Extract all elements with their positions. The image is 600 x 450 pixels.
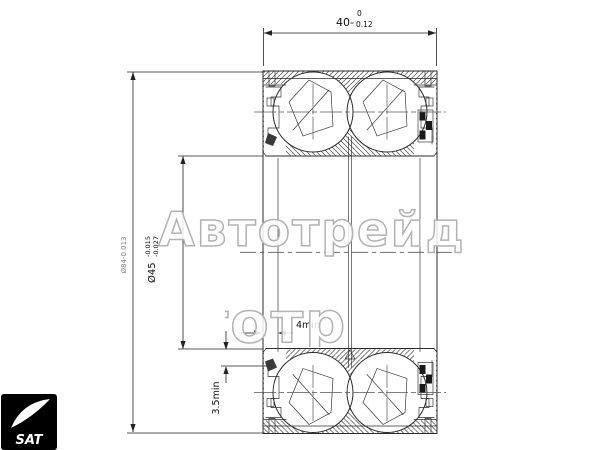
- bearing-top-half-section: [263, 71, 437, 156]
- bearing-drawing-page: 40- 0 0.12 Ø84-0.013 Ø45 -0.015 -0.027 4…: [0, 0, 600, 450]
- watermark-row-2: Автотрейд: [113, 291, 476, 356]
- brand-logo: SAT: [1, 394, 57, 450]
- bearing-technical-drawing: 40- 0 0.12 Ø84-0.013 Ø45 -0.015 -0.027 4…: [0, 0, 600, 450]
- dim-seal-depth-value: 3.5min: [211, 381, 222, 414]
- bearing-bottom-half-section: [263, 349, 437, 434]
- dim-width: 40- 0 0.12: [264, 9, 437, 66]
- dim-width-upper-tol: 0: [357, 9, 362, 18]
- dim-bore-value: Ø45: [146, 262, 158, 283]
- dim-outer-diameter-value: Ø84-0.013: [120, 237, 128, 274]
- dim-width-lower-tol: 0.12: [356, 20, 373, 29]
- watermark-row-1: Автотрейд: [158, 203, 465, 258]
- dim-bore-upper-tol: -0.015: [144, 236, 152, 257]
- brand-logo-text: SAT: [15, 433, 43, 448]
- dim-width-value: 40-: [336, 16, 354, 29]
